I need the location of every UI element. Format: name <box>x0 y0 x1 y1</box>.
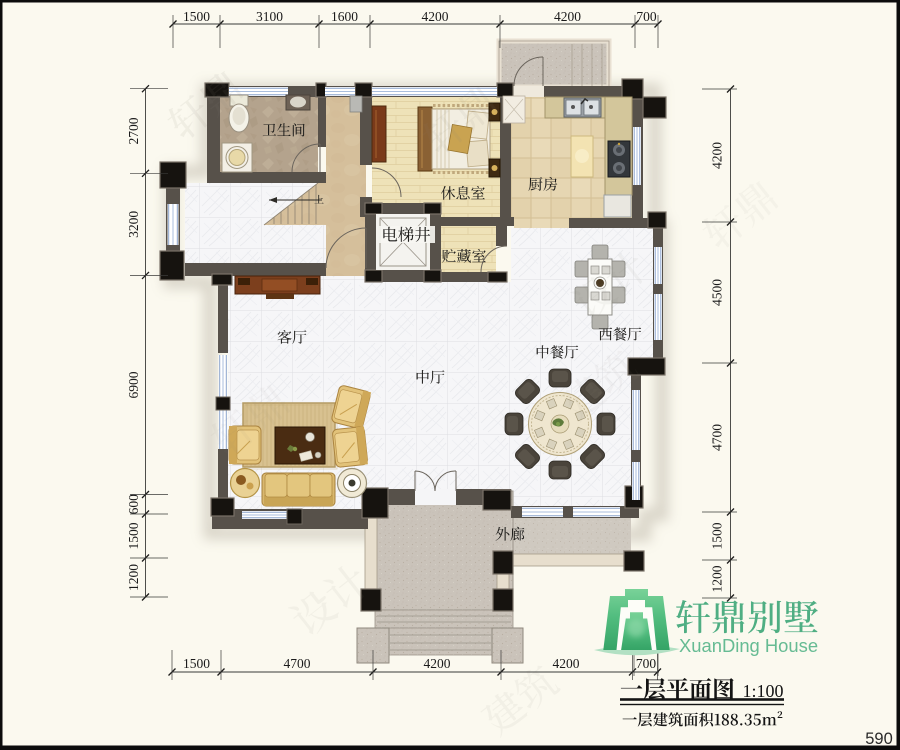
svg-text:4200: 4200 <box>553 656 580 671</box>
svg-text:4200: 4200 <box>554 9 581 24</box>
svg-text:1:100: 1:100 <box>742 681 783 701</box>
svg-text:590: 590 <box>865 730 893 748</box>
svg-text:2700: 2700 <box>126 117 141 144</box>
svg-text:XuanDing House: XuanDing House <box>679 635 818 656</box>
svg-text:1600: 1600 <box>331 9 358 24</box>
svg-text:4700: 4700 <box>710 424 725 451</box>
svg-text:1200: 1200 <box>126 564 141 591</box>
svg-text:4200: 4200 <box>710 142 725 169</box>
svg-text:1500: 1500 <box>183 656 210 671</box>
svg-text:1200: 1200 <box>710 565 725 592</box>
svg-text:1500: 1500 <box>710 522 725 549</box>
svg-text:700: 700 <box>636 9 657 24</box>
svg-text:6900: 6900 <box>126 371 141 398</box>
svg-text:4700: 4700 <box>284 656 311 671</box>
svg-text:1500: 1500 <box>126 522 141 549</box>
svg-text:1500: 1500 <box>183 9 210 24</box>
svg-text:4500: 4500 <box>710 279 725 306</box>
svg-text:3200: 3200 <box>126 211 141 238</box>
svg-text:3100: 3100 <box>256 9 283 24</box>
svg-text:4200: 4200 <box>424 656 451 671</box>
svg-text:4200: 4200 <box>422 9 449 24</box>
svg-text:600: 600 <box>126 494 141 515</box>
svg-text:700: 700 <box>636 656 657 671</box>
